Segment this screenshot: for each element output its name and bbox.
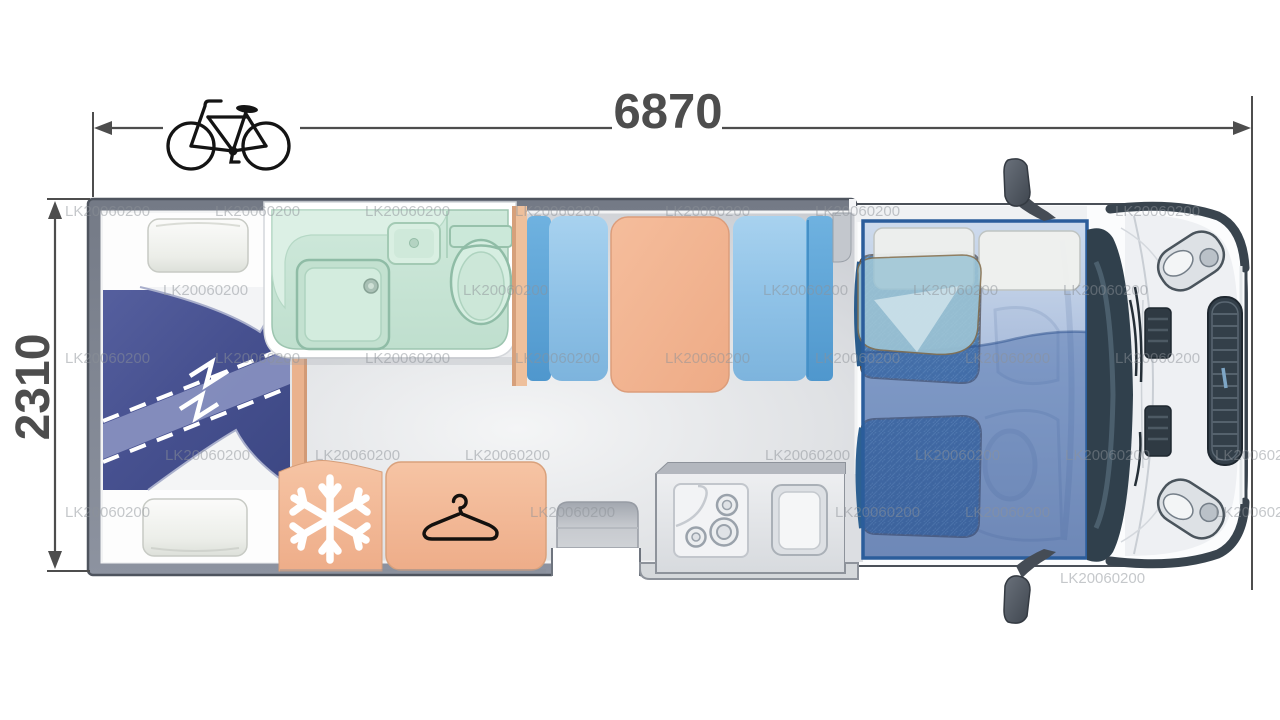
svg-text:LK20060200: LK20060200 [365, 350, 450, 367]
svg-text:LK20060200: LK20060200 [965, 350, 1050, 367]
svg-text:LK20060200: LK20060200 [1060, 570, 1145, 587]
svg-text:LK20060200: LK20060200 [65, 504, 150, 521]
svg-text:LK20060200: LK20060200 [65, 203, 150, 220]
svg-text:LK20060200: LK20060200 [365, 203, 450, 220]
svg-text:LK20060200: LK20060200 [915, 447, 1000, 464]
svg-text:LK20060200: LK20060200 [913, 282, 998, 299]
svg-text:LK20060200: LK20060200 [65, 350, 150, 367]
svg-text:LK20060200: LK20060200 [665, 203, 750, 220]
svg-text:LK20060200: LK20060200 [465, 447, 550, 464]
svg-text:LK20060200: LK20060200 [215, 350, 300, 367]
svg-text:LK20060200: LK20060200 [763, 282, 848, 299]
svg-text:LK20060200: LK20060200 [165, 447, 250, 464]
svg-text:LK20060200: LK20060200 [815, 203, 900, 220]
svg-text:LK20060200: LK20060200 [315, 447, 400, 464]
svg-text:LK20060200: LK20060200 [1115, 350, 1200, 367]
svg-text:LK20060200: LK20060200 [1115, 203, 1200, 220]
svg-text:LK20060200: LK20060200 [1063, 282, 1148, 299]
svg-text:LK20060200: LK20060200 [665, 350, 750, 367]
svg-text:LK20060200: LK20060200 [815, 350, 900, 367]
svg-text:LK20060200: LK20060200 [765, 447, 850, 464]
svg-text:LK20060200: LK20060200 [530, 504, 615, 521]
svg-text:6870: 6870 [613, 85, 722, 139]
svg-text:LK20060200: LK20060200 [163, 282, 248, 299]
svg-text:LK20060200: LK20060200 [515, 350, 600, 367]
svg-text:LK20060200: LK20060200 [1065, 447, 1150, 464]
svg-text:LK20060200: LK20060200 [463, 282, 548, 299]
svg-text:LK20060200: LK20060200 [215, 203, 300, 220]
svg-text:LK20060200: LK20060200 [965, 504, 1050, 521]
svg-text:LK20060200: LK20060200 [1215, 504, 1280, 521]
svg-text:LK20060200: LK20060200 [1215, 447, 1280, 464]
svg-text:LK20060200: LK20060200 [515, 203, 600, 220]
svg-text:LK20060200: LK20060200 [835, 504, 920, 521]
svg-text:2310: 2310 [7, 334, 60, 441]
